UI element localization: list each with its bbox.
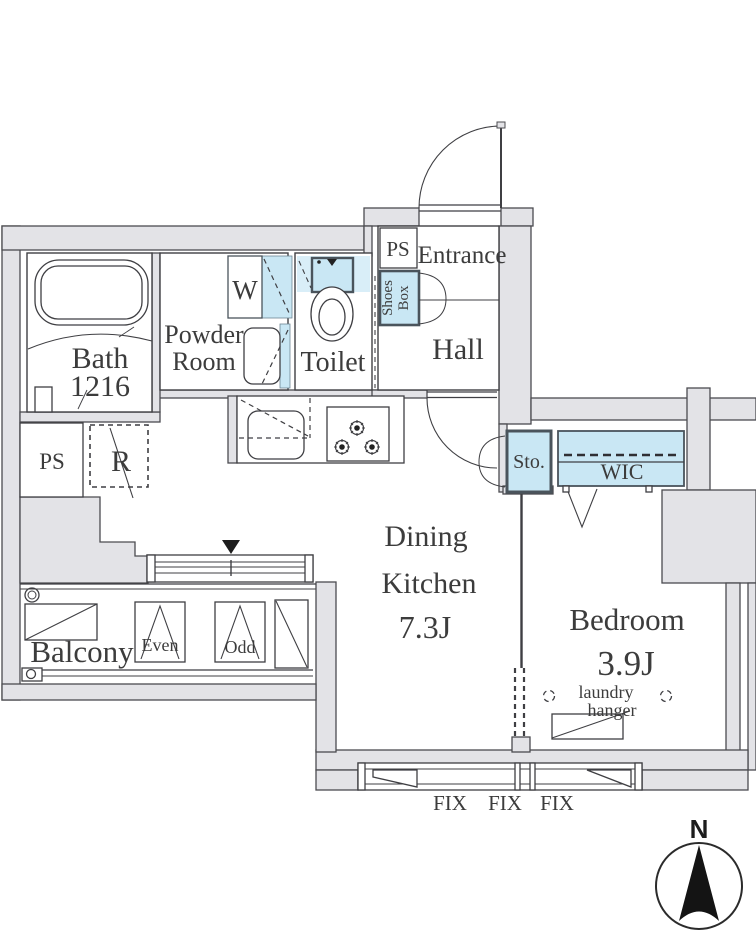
toilet-label: Toilet <box>301 347 366 378</box>
wall-band-right <box>531 398 756 420</box>
bedroom-label: Bedroom <box>569 602 684 637</box>
dk-door-arc <box>427 398 497 468</box>
wic-jamb-right <box>646 486 652 492</box>
entrance-label: Entrance <box>418 242 507 269</box>
window-marker-triangle <box>222 540 240 554</box>
wic-jamb-left <box>563 486 569 492</box>
wall-block-right <box>662 490 756 583</box>
vanity-side-zone <box>280 324 290 388</box>
entrance-door-arc <box>419 126 501 208</box>
balcony-drain <box>27 670 36 679</box>
dk-size-label: 7.3J <box>399 609 451 645</box>
wall-dk-west <box>316 582 336 752</box>
compass <box>656 843 742 929</box>
ps-left-label: PS <box>39 449 65 474</box>
powder-room-label-1: Powder <box>164 320 244 349</box>
wall-left <box>2 226 20 700</box>
bath-step <box>35 387 52 412</box>
toilet-handle-icon <box>317 260 321 264</box>
refrigerator-label: R <box>111 445 131 478</box>
wall-counter-stub <box>228 396 237 463</box>
wall-entrance-left <box>364 226 372 256</box>
wall-bath-bottom <box>20 412 160 422</box>
laundry-label: laundry <box>579 682 634 702</box>
fix-cap-l <box>358 763 365 790</box>
wall-bath-powder <box>152 253 160 412</box>
stove <box>327 407 389 461</box>
balcony-label: Balcony <box>30 634 134 669</box>
burner-icon <box>339 444 345 450</box>
floor-plan: Bath 1216 Powder Room Toilet Entrance Ha… <box>0 0 756 945</box>
entrance-door-cap <box>497 122 505 128</box>
wall-entrance-top-right <box>501 208 533 226</box>
partition <box>515 494 524 736</box>
hanger-hook-right <box>661 691 672 702</box>
wic-label: WIC <box>601 459 644 484</box>
powder-room-label-2: Room <box>172 347 236 376</box>
hanger-hook-left <box>544 691 555 702</box>
balcony-pipe <box>25 588 39 602</box>
even-label: Even <box>142 635 179 655</box>
wall-pier <box>512 737 530 752</box>
wall-balcony-outer <box>2 684 316 700</box>
wall-bottom-lip-right <box>642 770 748 790</box>
balcony-pipe-inner <box>28 591 36 599</box>
shoes-box-label-1: Shoes <box>380 280 396 316</box>
odd-label: Odd <box>225 637 256 657</box>
wall-entrance-top-left <box>364 208 419 226</box>
wall-bedroom-right <box>726 583 740 752</box>
wall-strip-right <box>687 388 710 490</box>
compass-north-label: N <box>690 814 709 844</box>
toilet-seat <box>319 299 345 335</box>
ps-top-label: PS <box>386 237 409 261</box>
fix-label-2: FIX <box>488 791 522 815</box>
wall-under-ps <box>20 497 148 583</box>
fix-mullion <box>515 763 520 790</box>
wic-door-v <box>567 489 597 527</box>
dk-window-jamb-r <box>305 555 313 582</box>
fix-cap-r <box>635 763 642 790</box>
wall-bottom-lip-left <box>316 770 358 790</box>
hanger-label: hanger <box>588 700 637 720</box>
dk-window <box>147 555 313 582</box>
dk-window-jamb-l <box>147 555 155 582</box>
storage-label: Sto. <box>513 451 545 473</box>
bath-size-label: 1216 <box>70 370 130 403</box>
bathtub-inner <box>41 266 142 319</box>
wall-top <box>2 226 364 250</box>
washer-label: W <box>232 275 258 305</box>
fix-label-3: FIX <box>540 791 574 815</box>
kitchen-label: Kitchen <box>382 567 477 600</box>
vanity-sink <box>244 328 280 384</box>
burner-icon <box>369 444 375 450</box>
dining-label: Dining <box>384 520 467 553</box>
shoes-box-label-2: Box <box>396 285 412 311</box>
wall-right-edge <box>748 583 756 770</box>
hall-label: Hall <box>432 333 484 366</box>
fix-label-1: FIX <box>433 791 467 815</box>
fix-mullion2 <box>530 763 535 790</box>
burner-icon <box>354 425 360 431</box>
bedroom-size-label: 3.9J <box>597 644 654 683</box>
